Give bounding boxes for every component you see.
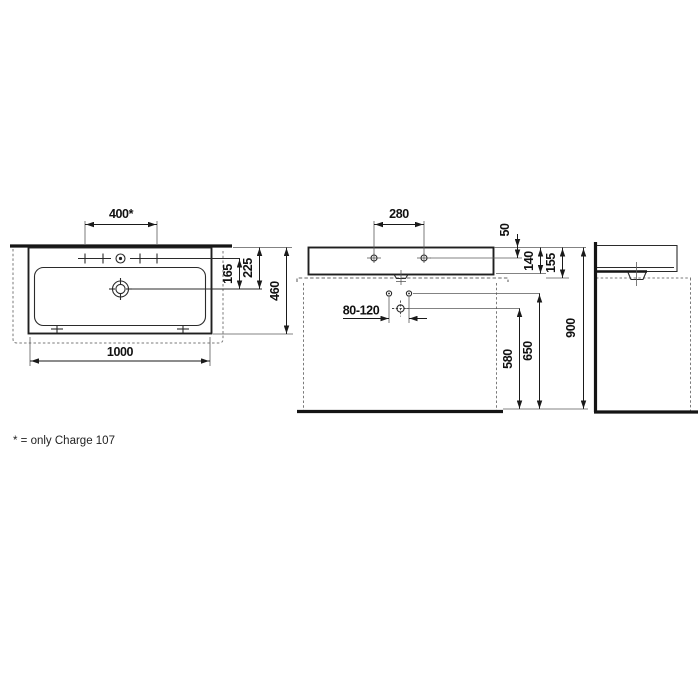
dim-label-155: 155 — [544, 253, 558, 273]
dim-drain-height: 580 — [501, 309, 520, 410]
dim-label-140: 140 — [522, 251, 536, 271]
dim-tap-hole-spacing: 400* — [85, 207, 157, 244]
tap-hole-bolt-right — [417, 253, 431, 263]
dim-label-900: 900 — [564, 318, 578, 338]
front-view: 280 50 140 155 — [297, 207, 588, 412]
washbasin-dimension-drawing: 400* 165 225 460 1000 — [0, 0, 700, 700]
dim-label-50: 50 — [498, 223, 512, 237]
dim-overall-height: 155 — [544, 248, 569, 279]
top-view-dashed-outline — [13, 249, 223, 343]
dim-bracket-height: 650 — [521, 294, 540, 410]
dim-depth-group: 165 225 460 — [213, 248, 293, 335]
side-view — [594, 242, 698, 412]
tap-hole-row — [78, 254, 240, 264]
dim-label-165: 165 — [221, 264, 235, 284]
dim-ceramic-height: 140 — [496, 248, 546, 274]
top-view: 400* 165 225 460 1000 — [10, 207, 293, 366]
dim-label-650: 650 — [521, 341, 535, 361]
dim-label-280: 280 — [389, 207, 409, 221]
technical-drawing-canvas: 400* 165 225 460 1000 — [0, 0, 700, 700]
dim-rim-height: 900 — [564, 248, 584, 410]
dim-label-1000: 1000 — [107, 345, 134, 359]
dim-label-580: 580 — [501, 349, 515, 369]
dim-label-400: 400* — [109, 207, 134, 221]
dim-label-225: 225 — [241, 258, 255, 278]
dim-bracket-spacing: 80-120 — [343, 297, 427, 323]
wall-fixing-holes — [386, 291, 411, 296]
dim-width: 1000 — [30, 337, 210, 366]
fixing-marks — [51, 325, 189, 333]
tap-hole-bolt-left — [367, 253, 381, 263]
dim-label-80-120: 80-120 — [343, 304, 380, 318]
side-drain-stub — [628, 273, 646, 280]
dim-rim-to-tap-hole: 50 — [498, 223, 518, 258]
footnote: * = only Charge 107 — [13, 435, 115, 447]
basin-outline — [29, 248, 212, 334]
dim-label-460: 460 — [268, 281, 282, 301]
